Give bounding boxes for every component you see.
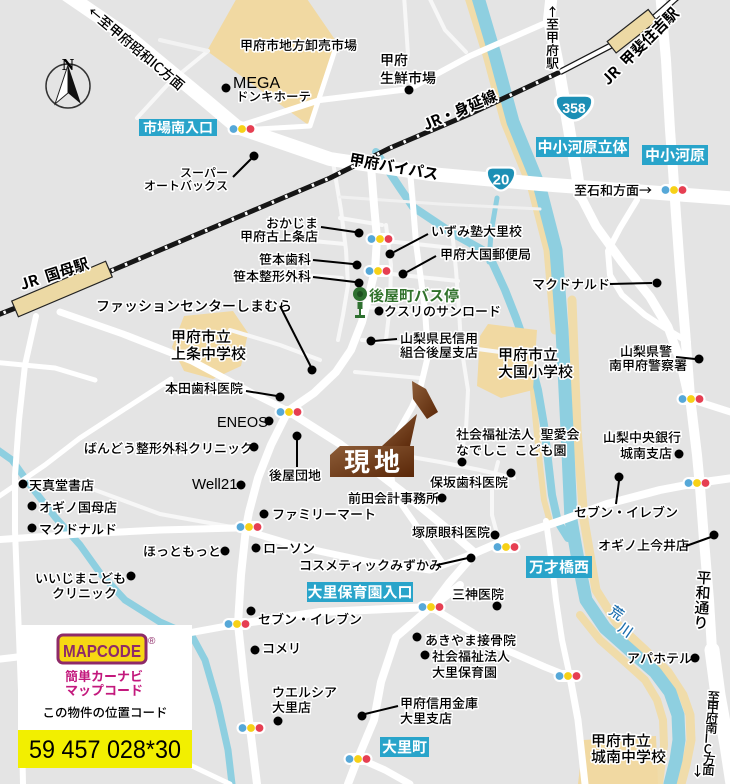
svg-text:ENEOS: ENEOS — [217, 415, 268, 431]
svg-text:N: N — [62, 55, 75, 74]
svg-text:20: 20 — [493, 171, 510, 188]
svg-text:Well21: Well21 — [192, 476, 238, 493]
svg-text:MAPCODE: MAPCODE — [63, 641, 141, 661]
svg-text:MEGA: MEGA — [233, 75, 280, 92]
svg-text:358: 358 — [562, 100, 586, 116]
svg-text:59 457 028*30: 59 457 028*30 — [29, 736, 181, 764]
svg-text:®: ® — [148, 636, 156, 647]
